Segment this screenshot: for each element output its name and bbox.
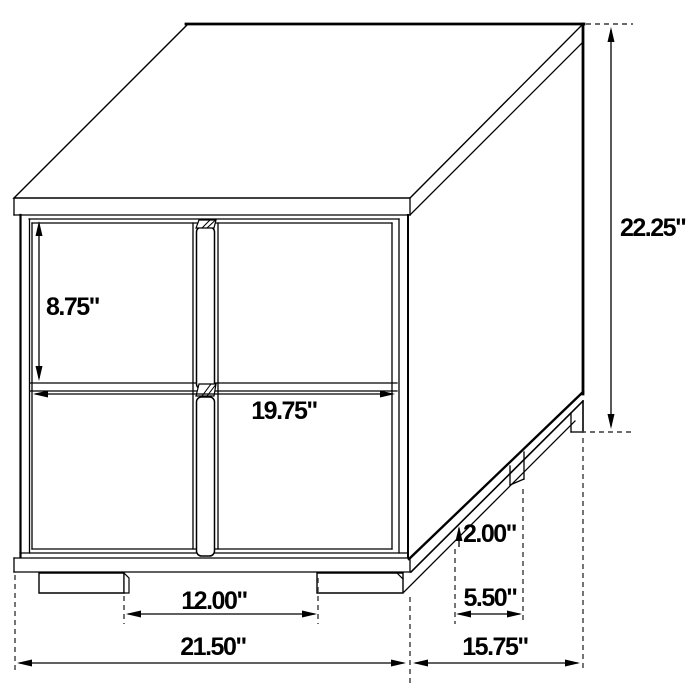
dim-overall-height: 22.25" <box>572 24 686 432</box>
leg-height-label: 2.00" <box>463 520 517 548</box>
dim-side-leg-inset: 5.50" <box>455 489 523 624</box>
drawer-width-label: 19.75" <box>251 397 317 425</box>
front-leg-spacing-label: 12.00" <box>181 587 247 615</box>
dim-leg-height: 2.00" <box>456 520 517 548</box>
top-face <box>14 24 584 215</box>
back-right-leg <box>571 401 583 432</box>
nightstand-dimension-diagram: 8.75" 22.25" 19.75" 2.00" <box>0 0 700 700</box>
lower-drawer-pull <box>197 397 215 556</box>
side-leg-inset-label: 5.50" <box>463 584 517 612</box>
overall-height-label: 22.25" <box>620 214 686 242</box>
upper-drawer-pull <box>197 227 215 389</box>
drawer-height-label: 8.75" <box>46 293 100 321</box>
overall-width-label: 21.50" <box>180 633 246 661</box>
front-left-leg <box>39 573 124 593</box>
bottom-band <box>14 558 410 572</box>
drawer-pulls <box>196 220 216 556</box>
front-right-leg <box>317 573 403 593</box>
dimension-drawing-canvas: 8.75" 22.25" 19.75" 2.00" <box>0 0 700 700</box>
nightstand-drawing <box>14 24 584 593</box>
dim-drawer-height: 8.75" <box>36 221 100 381</box>
dim-front-leg-spacing: 12.00" <box>124 578 318 624</box>
overall-depth-label: 15.75" <box>462 633 528 661</box>
